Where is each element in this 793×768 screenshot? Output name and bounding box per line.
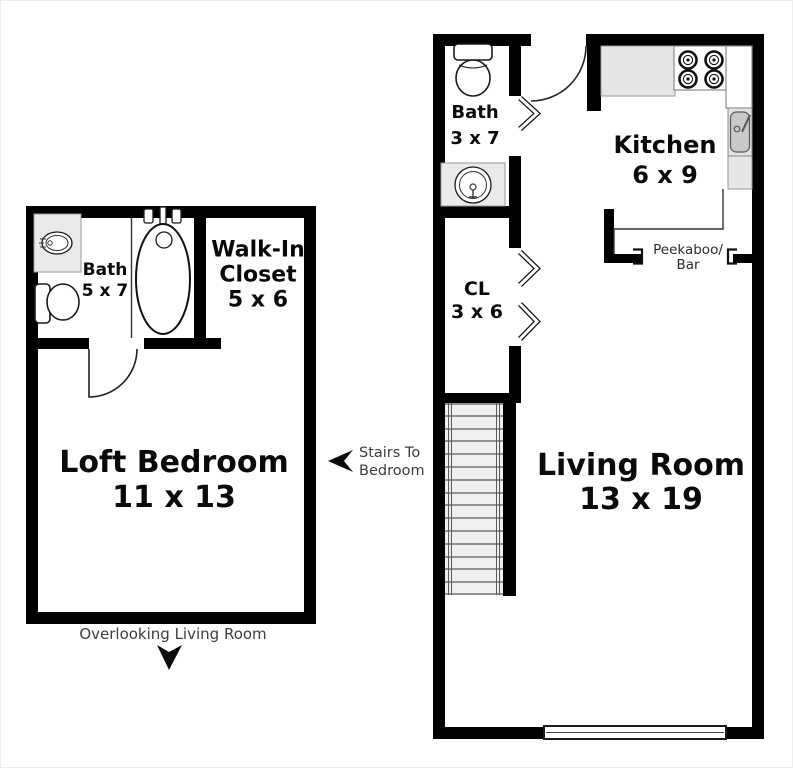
closet-label: CL 3 x 6 xyxy=(451,278,503,324)
living-room-label: Living Room 13 x 19 xyxy=(537,449,745,517)
bathroom-sink xyxy=(34,214,81,272)
upper-bath-name: Bath xyxy=(82,260,128,281)
bathtub xyxy=(136,207,190,334)
wall xyxy=(503,400,516,596)
living-room-dims: 13 x 19 xyxy=(537,483,745,517)
wall xyxy=(509,346,521,394)
upper-bath-label: Bath 5 x 7 xyxy=(82,260,128,302)
toilet xyxy=(35,284,79,323)
stairs-note-line2: Bedroom xyxy=(359,462,425,480)
down-arrow-icon xyxy=(157,645,182,670)
wall xyxy=(752,34,764,739)
main-bath-label: Bath 3 x 7 xyxy=(450,100,499,152)
living-room-name: Living Room xyxy=(537,449,745,483)
door-swing xyxy=(89,349,137,397)
kitchen-dims: 6 x 9 xyxy=(614,160,717,190)
upper-bath-dims: 5 x 7 xyxy=(82,281,128,302)
refrigerator xyxy=(726,46,752,108)
wall xyxy=(509,156,521,248)
bathroom-sink xyxy=(441,163,505,206)
wall xyxy=(445,206,509,218)
stairs xyxy=(445,403,503,595)
bath-door-chevron xyxy=(520,98,537,129)
walk-in-closet-dims: 5 x 6 xyxy=(211,288,304,313)
closet-dims: 3 x 6 xyxy=(451,301,503,324)
walk-in-closet-line1: Walk-In xyxy=(211,238,304,263)
wall xyxy=(733,254,752,263)
entry-door-swing xyxy=(531,46,586,101)
left-arrow-icon xyxy=(328,450,353,472)
wall xyxy=(433,34,445,739)
loft-bedroom-name: Loft Bedroom xyxy=(59,445,289,480)
stairs-note-line1: Stairs To xyxy=(359,444,425,462)
wall xyxy=(194,218,206,349)
wall xyxy=(144,338,221,349)
peekaboo-line1: Peekaboo/ xyxy=(653,243,723,258)
wall xyxy=(509,46,521,96)
loft-bedroom-label: Loft Bedroom 11 x 13 xyxy=(59,445,289,515)
window xyxy=(544,726,726,739)
kitchen-sink xyxy=(728,108,752,156)
loft-bedroom-dims: 11 x 13 xyxy=(59,480,289,515)
peekaboo-bar-note: Peekaboo/ Bar xyxy=(653,243,723,273)
burner xyxy=(706,71,723,88)
peekaboo-line2: Bar xyxy=(653,258,723,273)
closet-door-chevron xyxy=(520,304,537,339)
floor-plan: Bath 5 x 7 Walk-In Closet 5 x 6 Loft Bed… xyxy=(0,0,793,768)
burner xyxy=(706,52,723,69)
stove xyxy=(674,46,728,90)
main-bath-dims: 3 x 7 xyxy=(450,126,499,152)
wall xyxy=(587,46,601,111)
floor-plan-canvas xyxy=(1,1,793,768)
walk-in-closet-line2: Closet xyxy=(211,263,304,288)
overlooking-note: Overlooking Living Room xyxy=(79,625,266,643)
closet-name: CL xyxy=(451,278,503,301)
kitchen-label: Kitchen 6 x 9 xyxy=(614,130,717,190)
burner xyxy=(680,52,697,69)
wall xyxy=(38,338,89,349)
wall xyxy=(304,206,316,624)
stairs-to-bedroom-note: Stairs To Bedroom xyxy=(359,444,425,480)
main-bath-name: Bath xyxy=(450,100,499,126)
wall xyxy=(586,34,764,46)
walk-in-closet-label: Walk-In Closet 5 x 6 xyxy=(211,238,304,313)
toilet xyxy=(454,44,492,96)
burner xyxy=(680,71,697,88)
wall xyxy=(604,209,614,254)
wall xyxy=(26,612,316,624)
kitchen-name: Kitchen xyxy=(614,130,717,160)
wall xyxy=(604,254,641,263)
closet-door-chevron xyxy=(520,252,537,285)
